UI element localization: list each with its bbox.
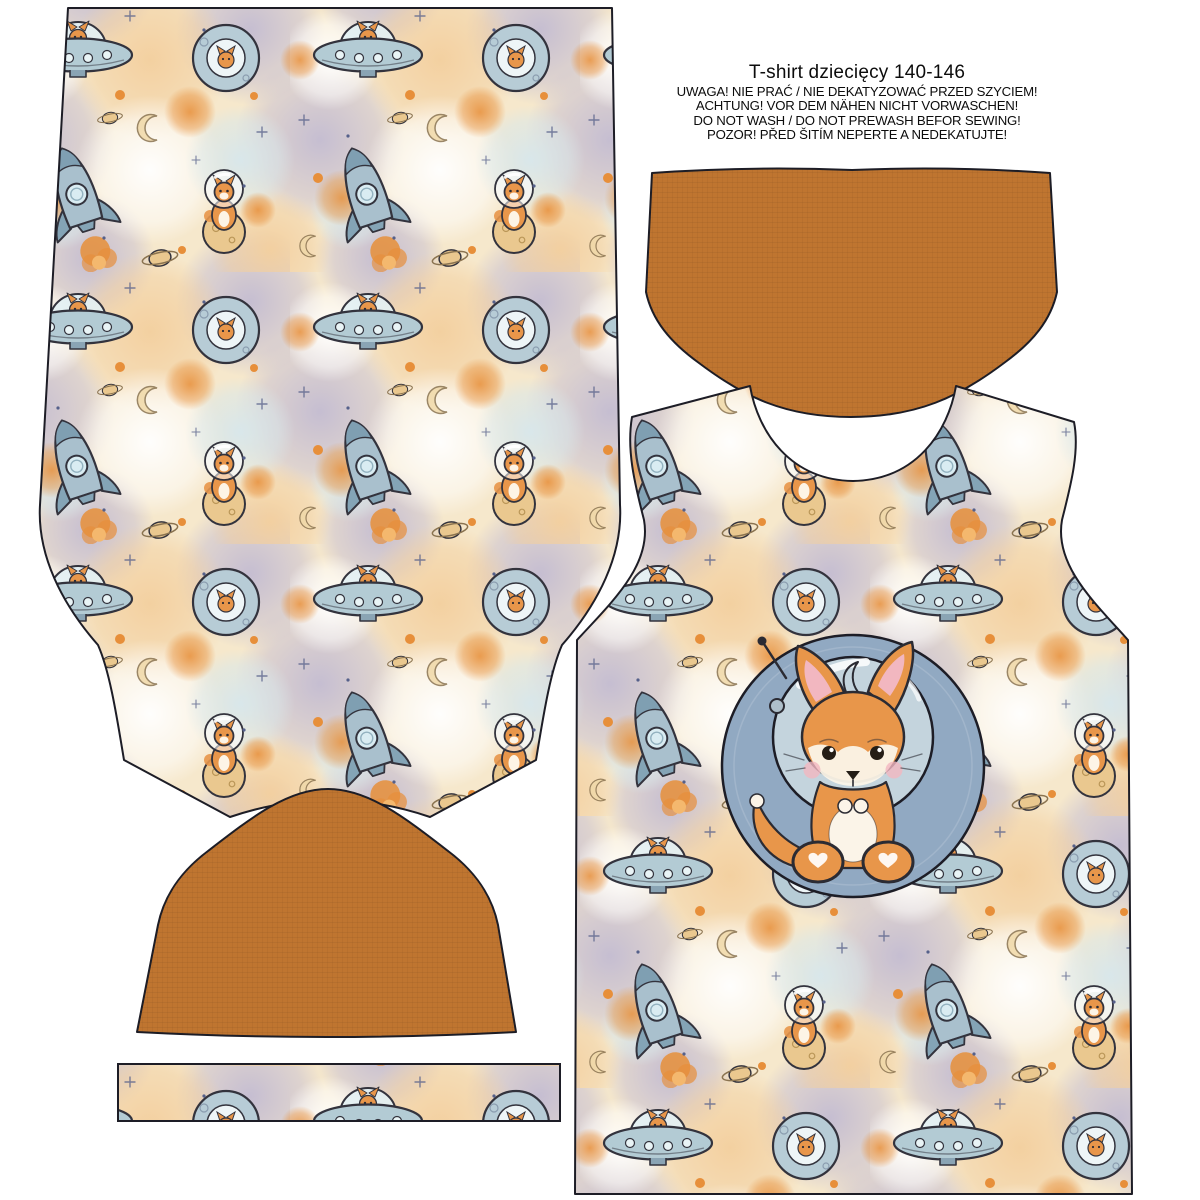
sleeve-piece-bottom-texture — [137, 789, 516, 1037]
panel-sheet: T-shirt dziecięcy 140-146 UWAGA! NIE PRA… — [0, 0, 1200, 1200]
pattern-pieces-canvas — [0, 0, 1200, 1200]
fox-badge — [722, 635, 984, 897]
back-panel-piece — [40, 8, 620, 817]
sleeve-piece-top-texture — [646, 169, 1057, 417]
neckband-strip — [118, 1064, 560, 1121]
